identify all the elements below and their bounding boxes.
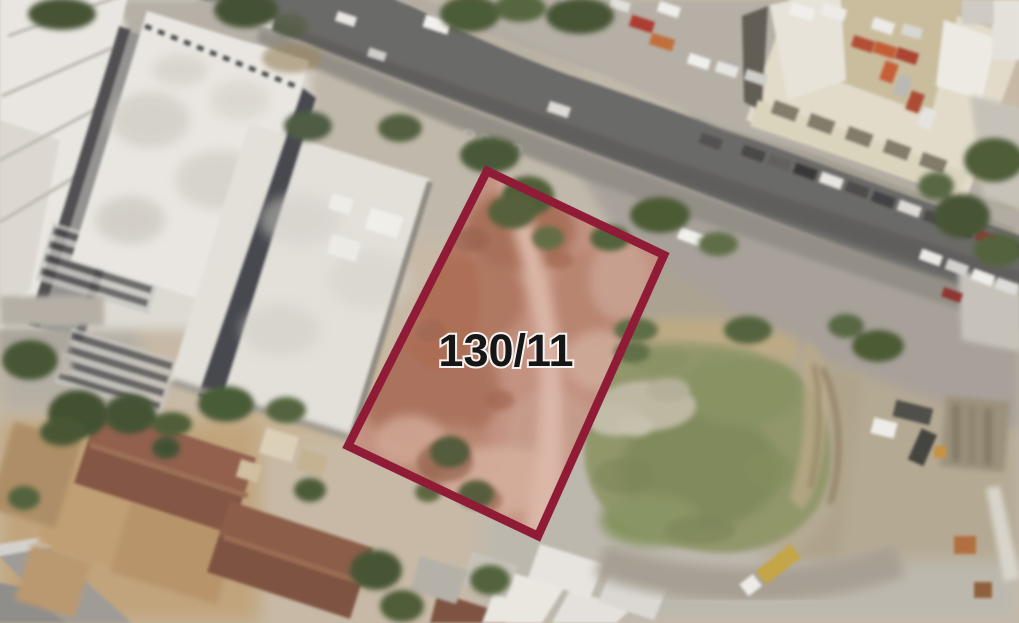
svg-text:130/11: 130/11 <box>438 325 573 376</box>
